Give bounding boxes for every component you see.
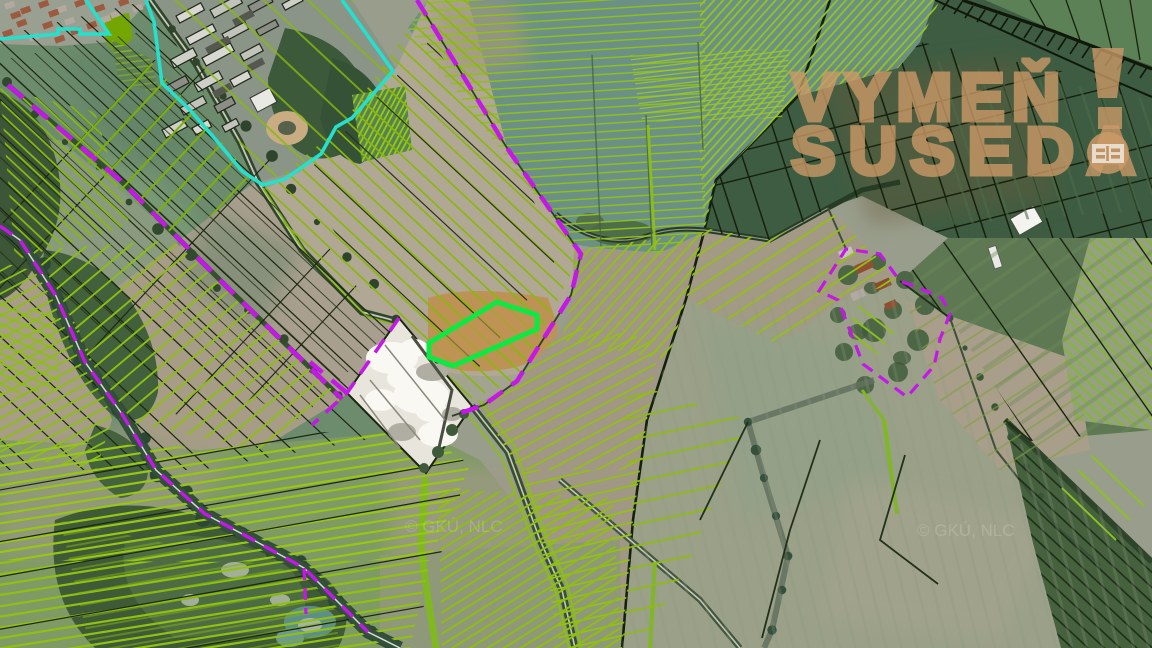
svg-text:© GKÚ, NLC: © GKÚ, NLC [917,521,1015,540]
svg-text:© GKÚ, NLC: © GKÚ, NLC [405,517,503,536]
